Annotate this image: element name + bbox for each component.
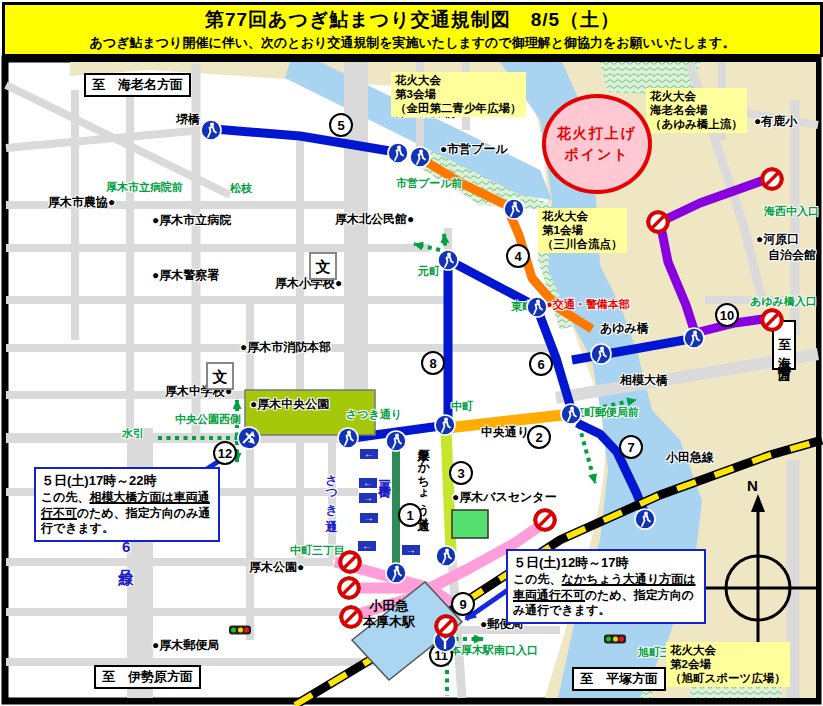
map-label: あゆみ橋 <box>600 322 649 335</box>
traffic-light-icon <box>229 626 251 635</box>
traffic-light-lamp <box>244 628 249 633</box>
pedestrian-icon <box>590 343 612 365</box>
venue-line: 花火大会 <box>650 90 743 104</box>
no-entry-icon <box>760 308 784 332</box>
map-label: ●交通・警備本部 <box>546 299 630 311</box>
pedestrian-icon <box>503 198 525 220</box>
direction-sign: 至 伊勢原方面 <box>94 665 201 689</box>
launch-point-line: 花火打上げ <box>557 123 637 144</box>
regulation-notice: ５日(土)17時～22時この先、相模大橋方面は車両通行不可のため、指定方向のみ通… <box>34 467 220 542</box>
pedestrian-icon <box>387 142 409 164</box>
map-overlay: 堺橋第二鮎津橋●市営プール市営プール前厚木市立病院前松枝厚木市農協●●厚木市立病… <box>0 0 823 706</box>
traffic-light-icon <box>604 635 626 644</box>
pedestrian-icon <box>337 427 359 449</box>
direction-sign: 至 海老名方面 <box>84 73 191 97</box>
map-label: 厚木北公民館● <box>335 213 414 226</box>
map-label: 本厚木駅南口入口 <box>450 645 538 657</box>
pedestrian-icon <box>385 430 407 452</box>
no-entry-icon <box>434 614 458 638</box>
map-label: 中央通り <box>481 426 529 439</box>
map-label: 自治会館 <box>768 249 816 262</box>
oneway-right-icon: → <box>360 513 378 523</box>
map-label: ●河原口 <box>756 233 799 246</box>
map-label: さつき通り <box>325 466 338 526</box>
venue-line: 海老名会場 <box>650 104 743 118</box>
fireworks-venue-label: 花火大会海老名会場（あゆみ橋上流） <box>646 88 747 133</box>
map-label: 海西中入口 <box>764 206 819 218</box>
pedestrian-icon <box>560 403 582 425</box>
oneway-left-icon: ← <box>360 449 378 459</box>
crossing-icon <box>237 426 261 450</box>
venue-line: 花火大会 <box>670 644 786 658</box>
pedestrian-icon <box>200 119 222 141</box>
venue-line: （旭町スポーツ広場） <box>670 672 786 686</box>
route-number-badge: 3 <box>449 461 473 485</box>
route-number-badge: 8 <box>421 351 445 375</box>
venue-line: （あゆみ橋上流） <box>650 118 743 132</box>
fireworks-venue-label: 花火大会第2会場（旭町スポーツ広場） <box>666 642 790 687</box>
route-number-badge: 5 <box>329 113 353 137</box>
notice-body: この先、相模大橋方面は車両通行不可のため、指定方向のみ通行できます。 <box>41 490 213 537</box>
map-label: ●厚木市立病院 <box>152 214 231 227</box>
oneway-right-icon: → <box>402 545 420 555</box>
map-label: 中町三丁目 <box>290 545 345 557</box>
map-label: 厚木市農協● <box>48 196 115 209</box>
notice-body: この先、なかちょう大通り方面は車両通行不可のため、指定方向のみ通行できます。 <box>513 572 699 619</box>
fireworks-venue-label: 花火大会第3会場（金田第二青少年広場） <box>391 72 526 117</box>
map-label: 中央公園西側 <box>175 414 241 426</box>
notice-title: ５日(土)12時～17時 <box>513 554 699 572</box>
map-label: ●市営プール <box>440 143 508 156</box>
venue-line: 第3会場 <box>395 88 522 102</box>
route-number-badge: 2 <box>527 425 551 449</box>
map-label: ●厚木中央公園 <box>250 398 329 411</box>
oneway-right-icon: → <box>359 493 377 503</box>
traffic-light-lamp <box>613 637 618 642</box>
traffic-light-lamp <box>606 637 611 642</box>
map-label: 堺橋 <box>176 113 200 126</box>
fireworks-launch-point: 花火打上げポイント <box>542 94 652 194</box>
route-number-badge: 1 <box>398 503 422 527</box>
route-number-badge: 12 <box>213 441 237 465</box>
station-label-line: 小田急 <box>363 598 415 614</box>
pedestrian-icon <box>385 562 407 584</box>
map-label: 市営プール前 <box>396 178 463 190</box>
route-number-badge: 7 <box>619 435 643 459</box>
venue-line: 第1会場 <box>542 224 623 238</box>
map-label: ●厚木警察署 <box>152 269 219 282</box>
map-label: 東町郵便局前 <box>573 407 639 419</box>
pedestrian-icon <box>634 508 656 530</box>
map-label: 中町 <box>451 401 473 413</box>
route-number-badge: 6 <box>529 352 553 376</box>
no-entry-icon <box>533 508 557 532</box>
direction-sign: 至 平塚方面 <box>572 667 666 691</box>
route-number-badge: 4 <box>506 244 530 268</box>
map-label: ●厚木郵便局 <box>152 639 219 652</box>
traffic-light-lamp <box>238 628 243 633</box>
map-label: 厚木一番街 <box>378 472 391 477</box>
map-label: ●有鹿小 <box>754 115 797 128</box>
no-entry-icon <box>339 605 363 629</box>
map-label: 水引 <box>122 428 144 440</box>
oneway-left-icon: ← <box>358 541 376 551</box>
map-label: さつき通り <box>346 409 402 421</box>
notice-title: ５日(土)17時～22時 <box>41 472 213 490</box>
route-number-badge: 10 <box>715 303 739 327</box>
station-label-line: 本厚木駅 <box>363 614 415 630</box>
no-entry-icon <box>337 576 361 600</box>
oneway-left-icon: ← <box>359 478 377 488</box>
venue-line: （三川合流点） <box>542 238 623 252</box>
regulation-notice: ５日(土)12時～17時この先、なかちょう大通り方面は車両通行不可のため、指定方… <box>506 549 706 624</box>
school-icon: 文 <box>309 252 337 280</box>
map-label: 厚木市立病院前 <box>106 182 183 194</box>
map-label: ●厚木バスセンター <box>452 491 557 504</box>
traffic-light-lamp <box>619 637 624 642</box>
map-label: N <box>747 478 758 494</box>
pedestrian-icon <box>435 545 457 567</box>
station-label: 小田急本厚木駅 <box>363 598 415 629</box>
route-number-badge: 9 <box>451 592 475 616</box>
no-entry-icon <box>646 210 670 234</box>
map-label: あゆみ橋入口 <box>750 296 817 308</box>
pedestrian-icon <box>434 414 456 436</box>
fireworks-venue-label: 花火大会第1会場（三川合流点） <box>538 208 627 253</box>
no-entry-icon <box>760 167 784 191</box>
traffic-regulation-map-page: 第77回あつぎ鮎まつり交通規制図 8/5（土） あつぎ鮎まつり開催に伴い、次のと… <box>0 0 823 706</box>
map-label: 厚木公園● <box>249 561 304 574</box>
map-label: 小田急線 <box>666 451 714 464</box>
pedestrian-icon <box>526 296 548 318</box>
map-label: ●厚木市消防本部 <box>240 341 331 354</box>
traffic-light-lamp <box>231 628 236 633</box>
map-label: 相模大橋 <box>620 374 668 387</box>
venue-line: （金田第二青少年広場） <box>395 102 522 116</box>
launch-point-line: ポイント <box>564 144 629 165</box>
venue-line: 花火大会 <box>542 210 623 224</box>
no-entry-icon <box>338 550 362 574</box>
map-label: 松枝 <box>230 183 252 195</box>
school-icon: 文 <box>206 362 234 390</box>
pedestrian-icon <box>683 327 705 349</box>
venue-line: 第2会場 <box>670 658 786 672</box>
pedestrian-icon <box>437 249 459 271</box>
venue-line: 花火大会 <box>395 74 522 88</box>
pedestrian-icon <box>409 146 431 168</box>
